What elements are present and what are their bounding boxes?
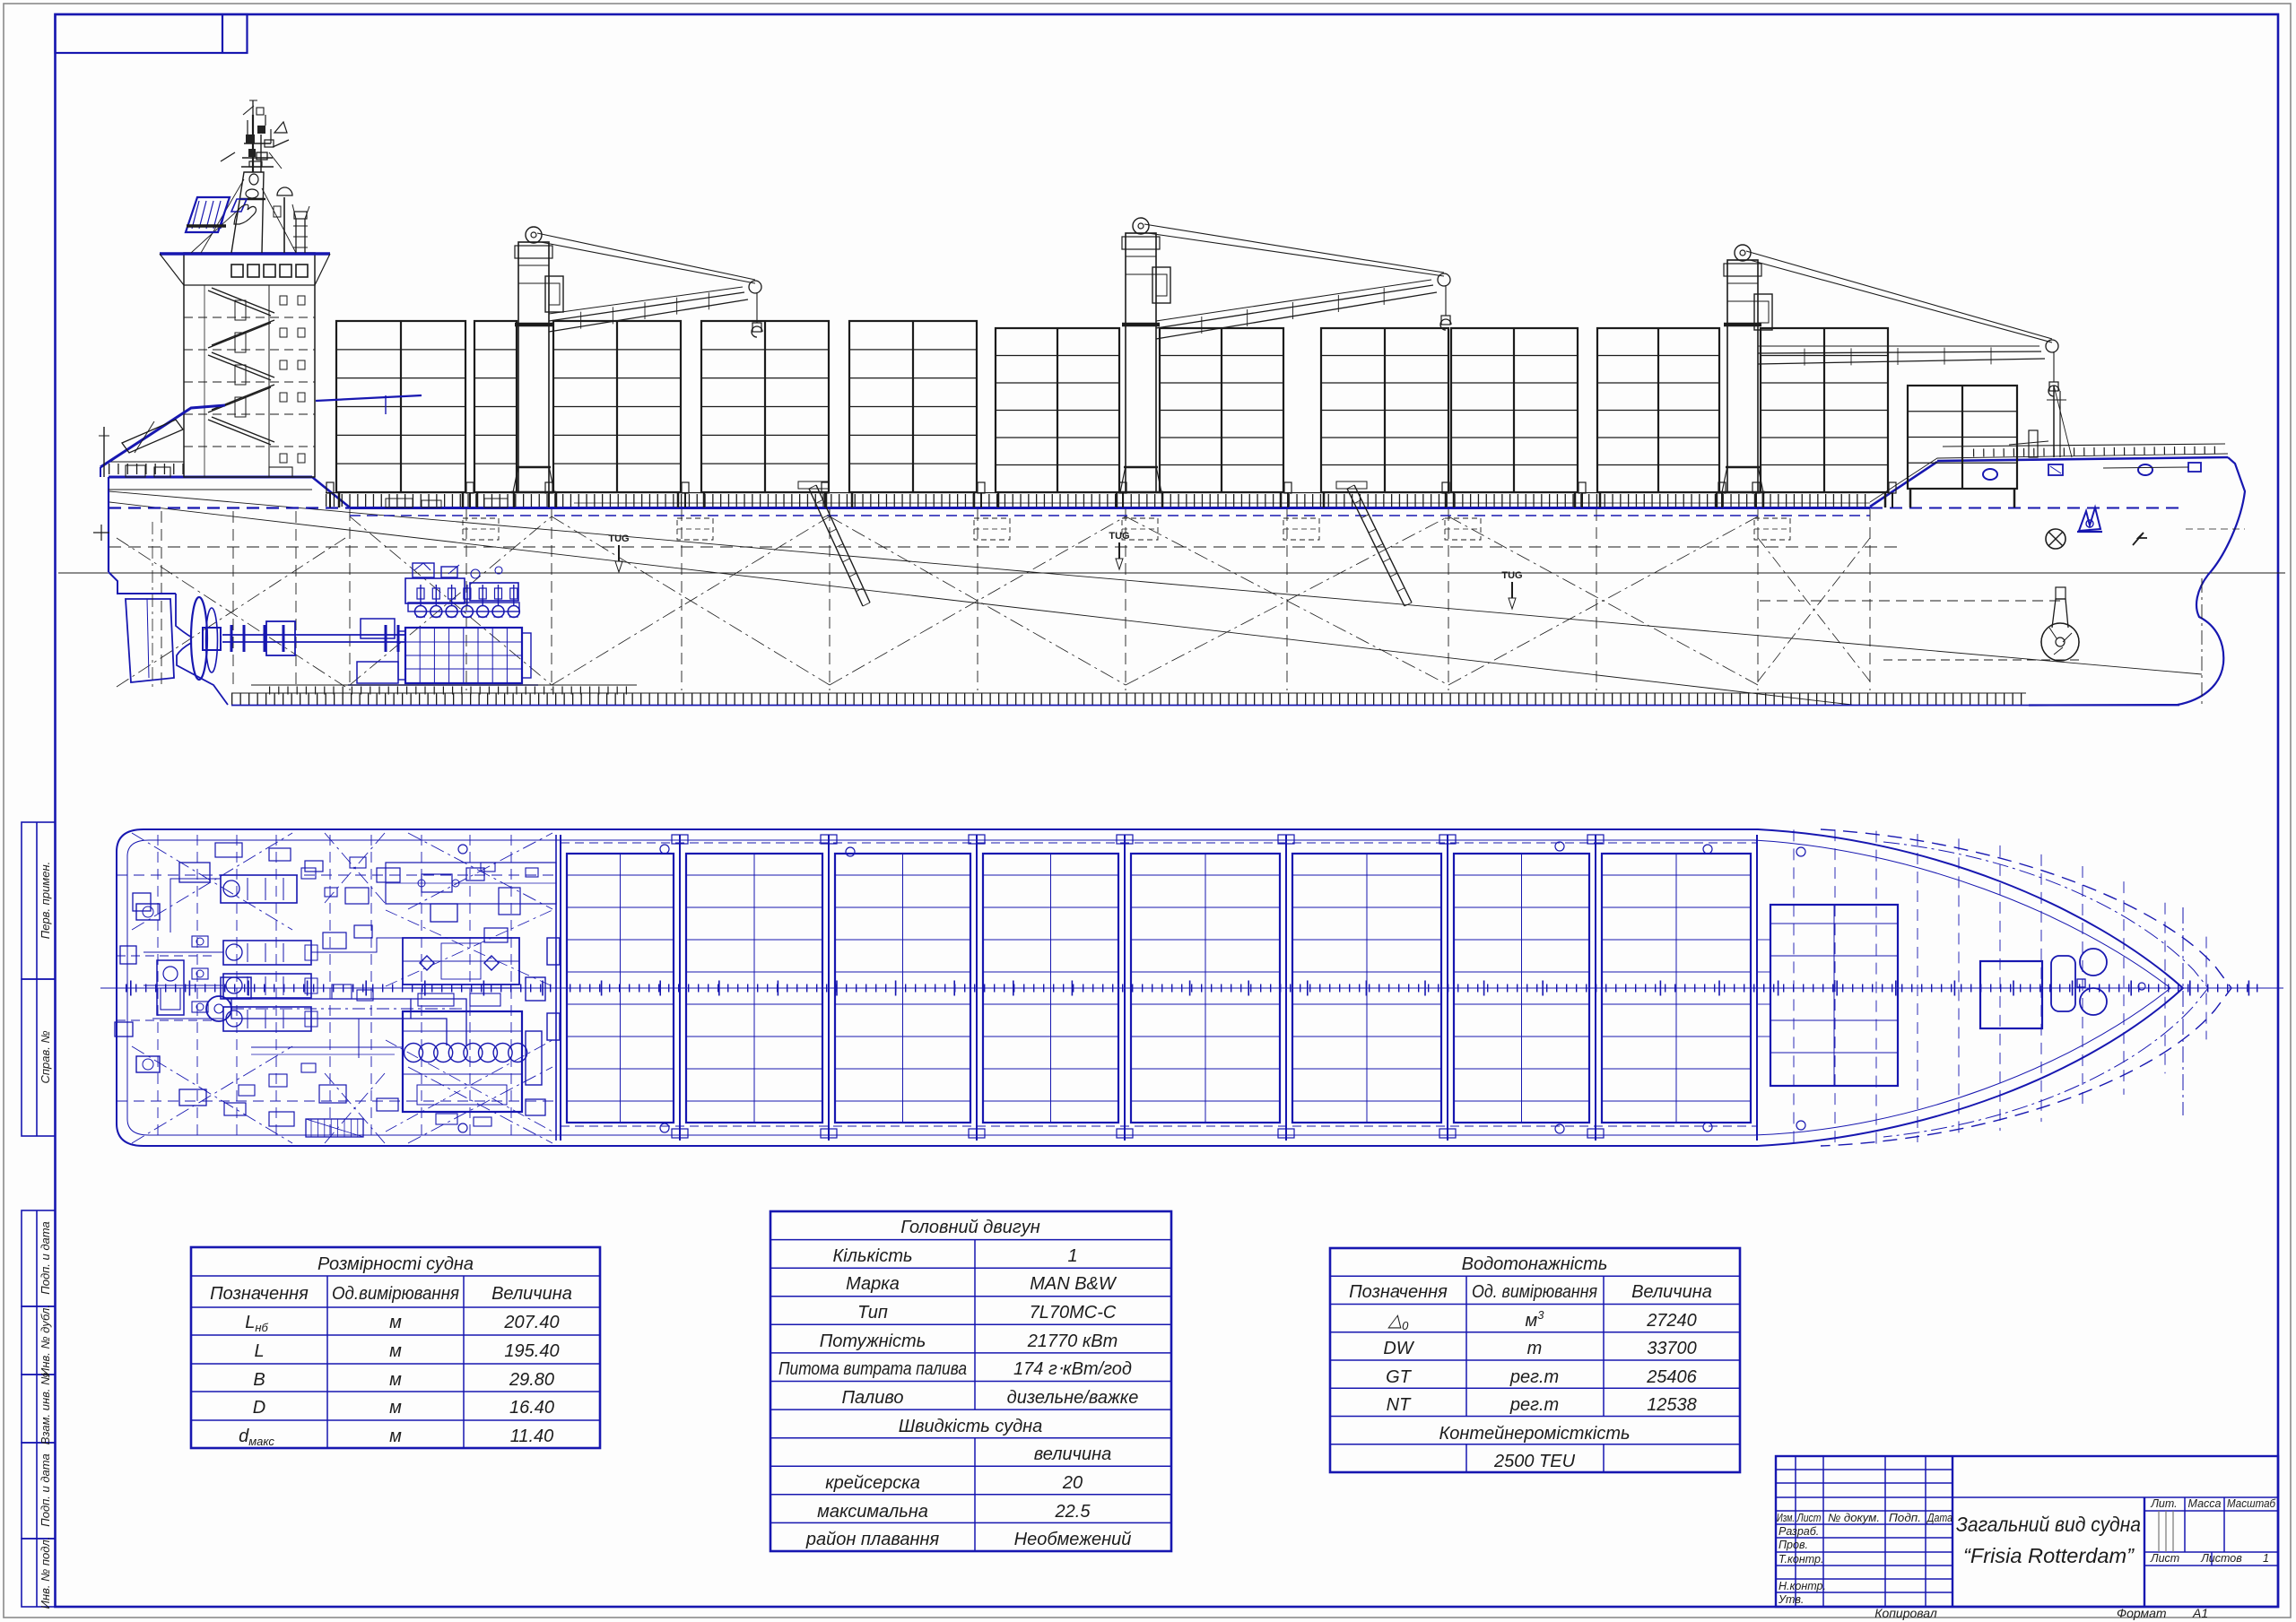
- svg-text:7L70MC-C: 7L70MC-C: [1030, 1303, 1117, 1323]
- svg-text:m: m: [1527, 1339, 1543, 1358]
- svg-text:м: м: [389, 1341, 402, 1361]
- svg-text:TUG: TUG: [1501, 570, 1522, 581]
- svg-text:Листов: Листов: [2200, 1552, 2242, 1565]
- svg-text:Позначення: Позначення: [210, 1284, 309, 1304]
- svg-text:Загальний вид судна: Загальний вид судна: [1956, 1513, 2141, 1536]
- svg-text:м: м: [389, 1398, 402, 1418]
- svg-text:рег.т: рег.т: [1509, 1395, 1559, 1415]
- svg-text:NT: NT: [1387, 1395, 1412, 1415]
- svg-text:Перв. примен.: Перв. примен.: [39, 862, 52, 939]
- svg-text:Разраб.: Разраб.: [1779, 1525, 1819, 1538]
- svg-text:Од.вимірювання: Од.вимірювання: [332, 1284, 459, 1304]
- svg-text:Головний двигун: Головний двигун: [900, 1218, 1040, 1237]
- svg-text:L: L: [254, 1341, 264, 1361]
- svg-text:крейсерска: крейсерска: [825, 1473, 920, 1493]
- svg-text:Кількість: Кількість: [832, 1246, 912, 1266]
- svg-text:Утв.: Утв.: [1778, 1593, 1804, 1606]
- svg-text:№ докум.: № докум.: [1828, 1512, 1880, 1524]
- svg-text:Копировал: Копировал: [1874, 1606, 1937, 1620]
- svg-text:Инв. № дубл.: Инв. № дубл.: [39, 1305, 52, 1376]
- svg-text:16.40: 16.40: [509, 1398, 554, 1418]
- svg-text:Швидкість судна: Швидкість судна: [899, 1417, 1043, 1436]
- svg-text:Водотонажність: Водотонажність: [1462, 1254, 1608, 1274]
- svg-text:Величина: Величина: [1631, 1282, 1712, 1302]
- svg-text:дизельне/важке: дизельне/важке: [1007, 1388, 1139, 1408]
- svg-text:“Frisia Rotterdam”: “Frisia Rotterdam”: [1963, 1544, 2135, 1567]
- svg-text:Инв. № подл.: Инв. № подл.: [39, 1537, 52, 1609]
- svg-text:Лист: Лист: [1796, 1512, 1822, 1524]
- svg-text:Контейнеромісткість: Контейнеромісткість: [1439, 1424, 1630, 1444]
- svg-text:29.80: 29.80: [509, 1370, 554, 1390]
- svg-text:максимальна: максимальна: [817, 1502, 928, 1522]
- svg-text:Величина: Величина: [491, 1284, 572, 1304]
- svg-text:величина: величина: [1034, 1444, 1111, 1464]
- svg-text:1: 1: [1067, 1246, 1077, 1266]
- svg-text:174 г⋅кВт/год: 174 г⋅кВт/год: [1013, 1359, 1132, 1379]
- svg-text:Подп.: Подп.: [1889, 1512, 1921, 1524]
- svg-text:м: м: [389, 1370, 402, 1390]
- svg-text:Дата: Дата: [1926, 1512, 1952, 1524]
- svg-text:GT: GT: [1386, 1367, 1413, 1387]
- svg-text:рег.т: рег.т: [1509, 1367, 1559, 1387]
- svg-text:33700: 33700: [1647, 1339, 1697, 1358]
- svg-text:Тип: Тип: [857, 1303, 888, 1323]
- svg-text:Масштаб: Масштаб: [2227, 1497, 2276, 1510]
- svg-text:Подп. и дата: Подп. и дата: [39, 1453, 52, 1526]
- svg-text:TUG: TUG: [608, 533, 629, 544]
- svg-text:22.5: 22.5: [1055, 1502, 1091, 1522]
- svg-text:Питома витрата палива: Питома витрата палива: [778, 1359, 967, 1379]
- svg-text:B: B: [253, 1370, 265, 1390]
- svg-text:Лит.: Лит.: [2150, 1497, 2177, 1510]
- svg-text:Взам. инв. №: Взам. инв. №: [39, 1373, 52, 1444]
- svg-text:Позначення: Позначення: [1349, 1282, 1448, 1302]
- svg-text:Масса: Масса: [2188, 1497, 2222, 1510]
- svg-text:Т.контр.: Т.контр.: [1779, 1553, 1823, 1566]
- svg-text:D: D: [253, 1398, 265, 1418]
- svg-text:Розмірності судна: Розмірності судна: [317, 1254, 474, 1274]
- svg-text:DW: DW: [1383, 1339, 1414, 1358]
- svg-text:TUG: TUG: [1109, 531, 1129, 542]
- svg-text:Необмежений: Необмежений: [1014, 1530, 1132, 1549]
- svg-text:А1: А1: [2192, 1606, 2208, 1620]
- svg-text:Паливо: Паливо: [842, 1388, 904, 1408]
- svg-text:Марка: Марка: [846, 1274, 900, 1294]
- svg-text:Лист: Лист: [2150, 1552, 2179, 1565]
- svg-text:27240: 27240: [1646, 1311, 1697, 1331]
- svg-text:Од. вимірювання: Од. вимірювання: [1472, 1282, 1597, 1302]
- svg-text:Формат: Формат: [2117, 1606, 2167, 1620]
- svg-text:2500 TEU: 2500 TEU: [1493, 1452, 1576, 1471]
- svg-text:Подп. и дата: Подп. и дата: [39, 1221, 52, 1294]
- svg-text:Н.контр.: Н.контр.: [1779, 1580, 1826, 1592]
- svg-text:20: 20: [1062, 1473, 1083, 1493]
- svg-text:район плавання: район плавання: [805, 1530, 940, 1549]
- svg-text:MAN B&W: MAN B&W: [1030, 1274, 1118, 1294]
- svg-text:Пров.: Пров.: [1779, 1539, 1808, 1551]
- svg-text:1: 1: [2263, 1552, 2269, 1565]
- svg-text:м: м: [389, 1427, 402, 1446]
- svg-text:Изм.: Изм.: [1777, 1512, 1795, 1524]
- svg-text:12538: 12538: [1647, 1395, 1697, 1415]
- svg-text:25406: 25406: [1646, 1367, 1697, 1387]
- svg-text:Справ. №: Справ. №: [39, 1030, 52, 1083]
- svg-text:м: м: [389, 1313, 402, 1332]
- svg-text:11.40: 11.40: [510, 1427, 554, 1446]
- svg-text:195.40: 195.40: [504, 1341, 559, 1361]
- svg-text:207.40: 207.40: [503, 1313, 559, 1332]
- svg-text:Потужність: Потужність: [820, 1331, 926, 1351]
- svg-text:21770 кВт: 21770 кВт: [1027, 1331, 1118, 1351]
